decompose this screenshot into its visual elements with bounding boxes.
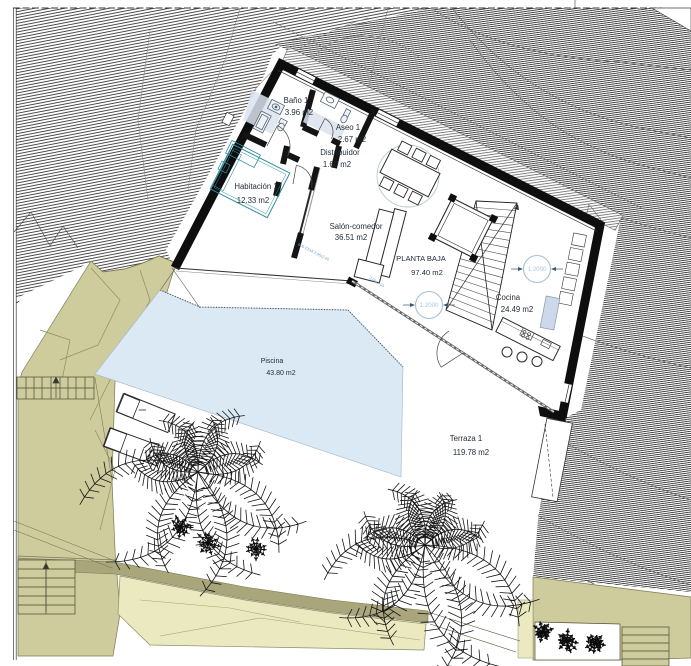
svg-text:12.33 m2: 12.33 m2 (237, 196, 270, 205)
svg-text:Cocina: Cocina (496, 293, 521, 302)
svg-text:1.60 m2: 1.60 m2 (323, 160, 351, 169)
svg-text:1.2000: 1.2000 (528, 266, 547, 273)
svg-text:PLANTA BAJA: PLANTA BAJA (396, 254, 447, 263)
svg-text:36.51 m2: 36.51 m2 (335, 233, 368, 242)
svg-text:3.96 m2: 3.96 m2 (285, 108, 313, 117)
svg-text:2.67 m2: 2.67 m2 (338, 135, 366, 144)
svg-text:Distribuidor: Distribuidor (320, 148, 360, 157)
svg-text:Aseo 1: Aseo 1 (336, 123, 360, 132)
svg-text:119.78 m2: 119.78 m2 (453, 448, 489, 457)
svg-text:Baño 1: Baño 1 (284, 96, 309, 105)
svg-text:97.40 m2: 97.40 m2 (411, 268, 443, 277)
svg-text:1.2000: 1.2000 (420, 302, 439, 309)
svg-text:Habitación 1: Habitación 1 (234, 182, 277, 191)
svg-text:Salón-comedor: Salón-comedor (330, 222, 383, 231)
svg-text:Terraza 1: Terraza 1 (450, 434, 483, 443)
svg-text:Piscina: Piscina (261, 358, 284, 365)
svg-text:24.49 m2: 24.49 m2 (501, 305, 534, 314)
svg-text:43.80 m2: 43.80 m2 (266, 370, 295, 377)
